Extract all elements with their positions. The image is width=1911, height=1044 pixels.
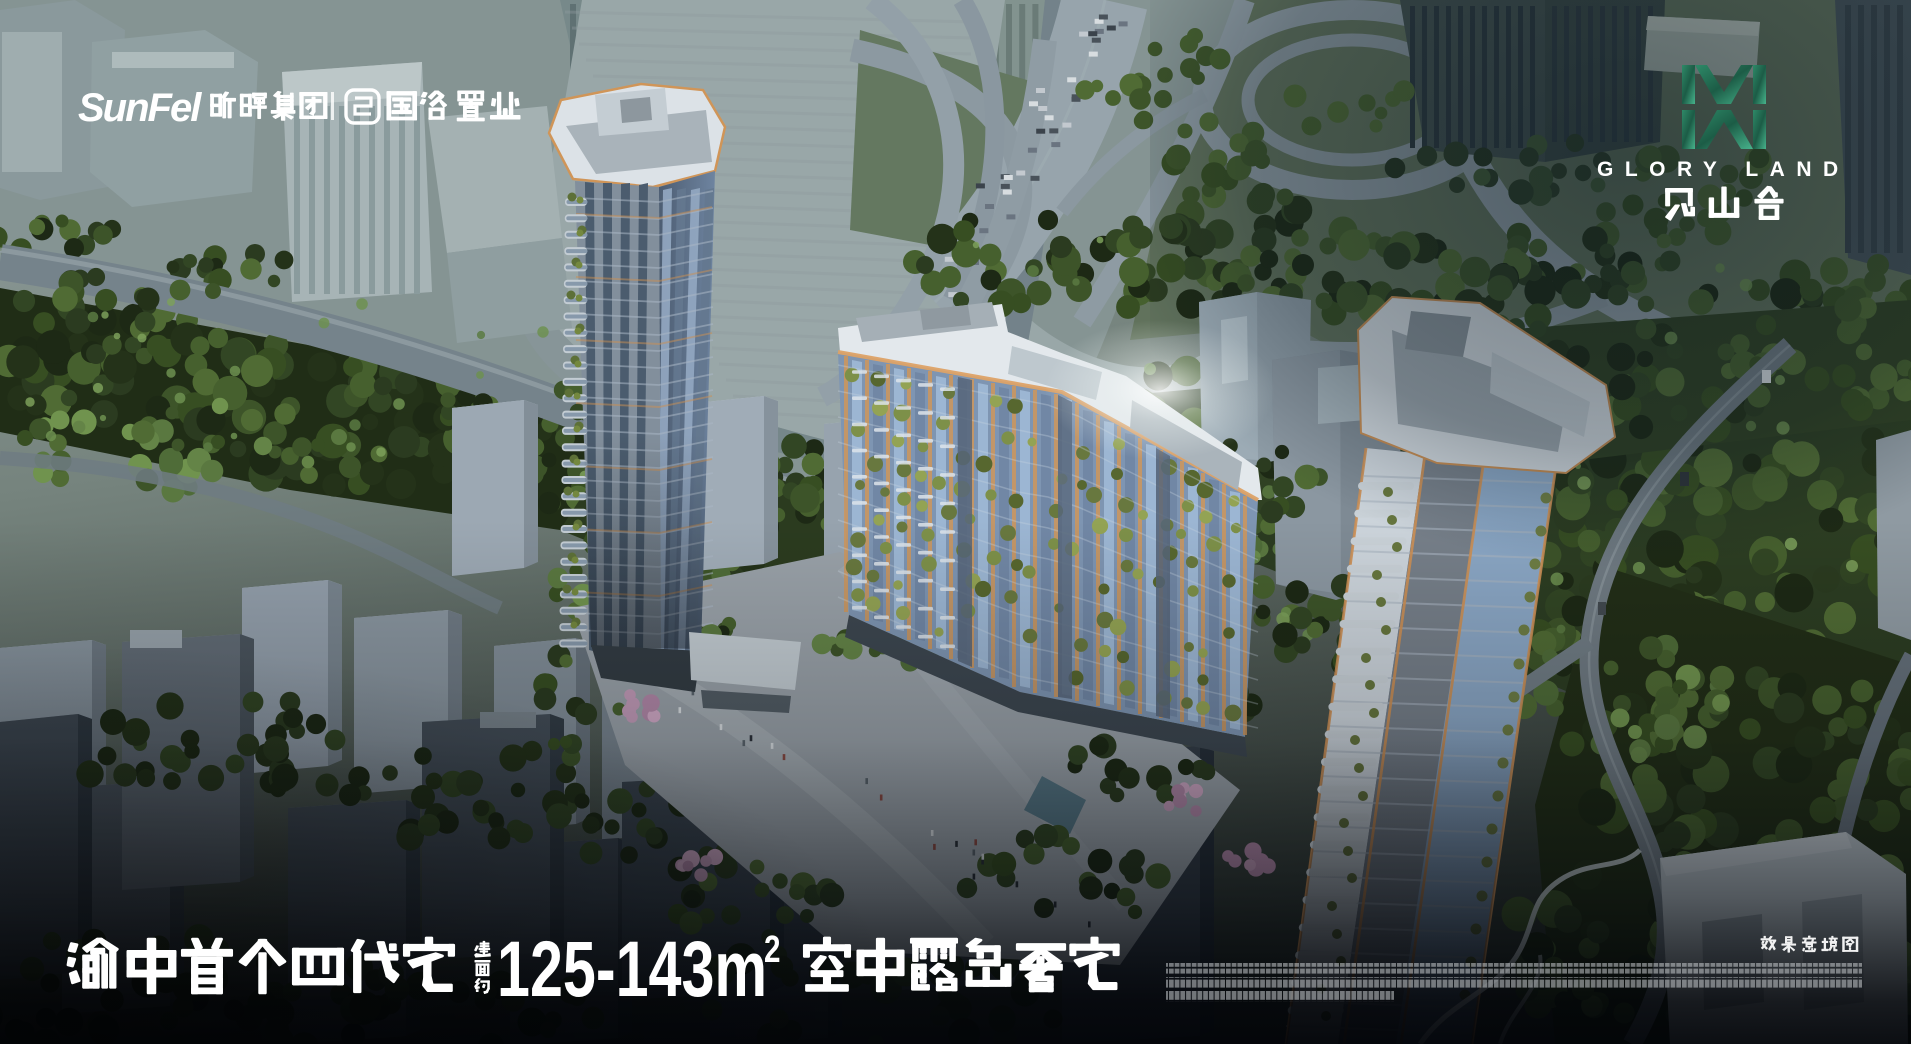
svg-text:2: 2	[764, 929, 780, 971]
svg-text:GLORY LAND: GLORY LAND	[1597, 158, 1850, 181]
svg-text:125-143m: 125-143m	[497, 925, 767, 1013]
svg-text:SunFel: SunFel	[78, 86, 202, 130]
